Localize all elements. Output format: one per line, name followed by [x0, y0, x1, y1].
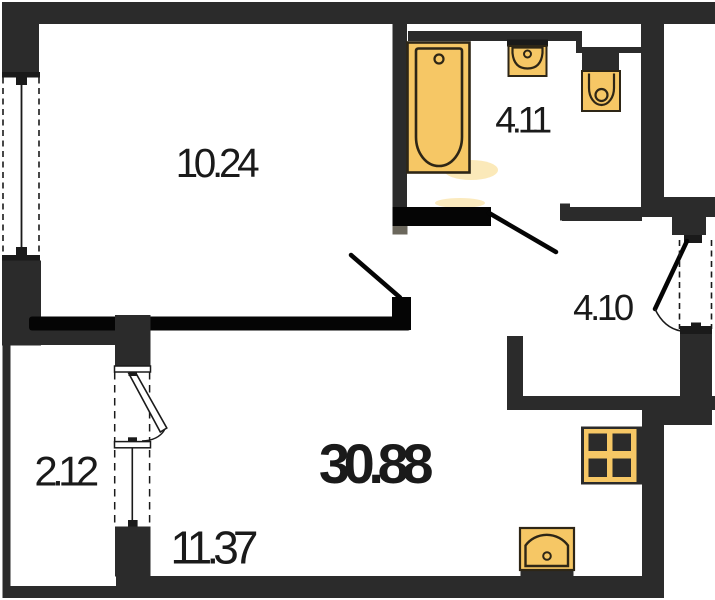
svg-text:11.37: 11.37	[170, 522, 257, 574]
svg-text:30.88: 30.88	[319, 432, 432, 495]
svg-text:10.24: 10.24	[176, 140, 260, 186]
svg-text:4.11: 4.11	[495, 99, 551, 141]
svg-text:2.12: 2.12	[34, 448, 98, 495]
svg-text:4.10: 4.10	[573, 287, 633, 328]
